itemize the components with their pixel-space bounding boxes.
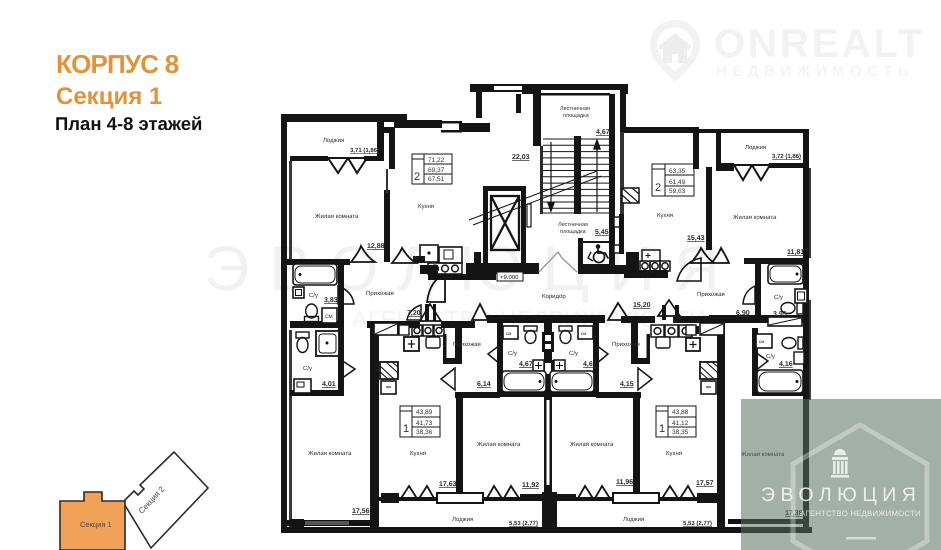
svg-text:Секция 1: Секция 1 [80,520,112,529]
svg-text:59,63: 59,63 [669,188,686,195]
svg-text:НЕДВИЖИМОСТЬ: НЕДВИЖИМОСТЬ [716,63,914,80]
svg-text:2: 2 [655,182,661,194]
svg-text:Кухня: Кухня [418,203,434,210]
svg-text:СМ: СМ [325,314,333,320]
svg-text:площадка: площадка [563,113,590,119]
svg-text:11,92: 11,92 [522,482,539,489]
svg-text:План 4-8 этажей: План 4-8 этажей [55,113,202,134]
svg-text:С/у: С/у [303,365,312,372]
svg-text:площадка: площадка [560,229,587,235]
svg-text:Кухня: Кухня [666,450,682,457]
svg-text:Лестничная: Лестничная [558,222,588,228]
svg-text:Лоджия: Лоджия [323,137,344,144]
svg-text:Кухня: Кухня [657,212,673,219]
svg-text:ONREALT: ONREALT [714,22,925,66]
svg-text:4,01: 4,01 [322,381,336,388]
svg-text:Жилая комната: Жилая комната [733,214,777,221]
svg-text:38,35: 38,35 [672,429,689,436]
svg-text:Жилая комната: Жилая комната [570,441,614,448]
svg-text:Секция 1: Секция 1 [56,83,162,110]
svg-text:Коридор: Коридор [542,293,566,300]
svg-text:3,95: 3,95 [773,311,787,318]
svg-text:67,51: 67,51 [428,176,445,183]
svg-text:3,83: 3,83 [324,297,338,304]
svg-text:С/у: С/у [766,353,775,360]
svg-text:41,12: 41,12 [672,420,689,427]
svg-text:С/у: С/у [569,350,578,357]
svg-text:17,57: 17,57 [696,480,714,487]
svg-text:41,73: 41,73 [416,420,433,427]
svg-text:С/у: С/у [774,294,783,301]
svg-text:12,88: 12,88 [367,243,385,250]
svg-text:17,56: 17,56 [352,508,370,515]
svg-text:Жилая комната: Жилая комната [315,213,359,220]
svg-text:Прихожая: Прихожая [366,290,394,297]
svg-text:15,20: 15,20 [633,302,651,309]
svg-text:4,15: 4,15 [620,381,634,388]
svg-text:11,81: 11,81 [787,249,804,256]
svg-text:15,43: 15,43 [687,235,705,242]
svg-text:43,88: 43,88 [672,409,689,416]
svg-text:69,37: 69,37 [428,167,445,174]
svg-text:6,14: 6,14 [477,381,491,388]
svg-text:Жилая комната: Жилая комната [477,441,521,448]
svg-text:4,67: 4,67 [519,361,533,368]
svg-text:+9.000: +9.000 [500,274,519,281]
svg-text:3,72 (1,86): 3,72 (1,86) [772,153,801,160]
svg-text:см: см [759,339,764,344]
svg-text:6,90: 6,90 [736,310,750,317]
svg-text:5,53 (2,77): 5,53 (2,77) [683,520,712,527]
svg-text:22,03: 22,03 [512,154,530,161]
svg-text:5,53 (2,77): 5,53 (2,77) [509,520,538,527]
svg-text:43,89: 43,89 [416,409,433,416]
svg-text:1: 1 [403,423,409,435]
svg-text:АГЕНТСТВО НЕДВИЖИМОСТИ: АГЕНТСТВО НЕДВИЖИМОСТИ [800,509,921,518]
svg-text:Лоджия: Лоджия [452,516,473,523]
svg-text:см: см [581,331,586,336]
svg-text:С/у: С/у [508,350,517,357]
svg-text:ЭВОЛЮЦИЯ: ЭВОЛЮЦИЯ [761,484,921,506]
svg-text:63,35: 63,35 [669,168,686,175]
svg-text:Кухня: Кухня [410,450,426,457]
svg-text:38,36: 38,36 [416,429,433,436]
svg-text:Лестничная: Лестничная [560,106,590,112]
svg-text:5,45: 5,45 [595,229,609,236]
svg-text:Прихожая: Прихожая [612,341,640,348]
svg-text:61,49: 61,49 [669,179,686,186]
svg-text:Лоджия: Лоджия [623,516,644,523]
svg-text:КОРПУС 8: КОРПУС 8 [56,49,179,79]
svg-text:71,22: 71,22 [428,157,445,164]
svg-text:17,63: 17,63 [439,481,457,488]
svg-text:11,96: 11,96 [616,479,633,486]
svg-text:1: 1 [659,423,665,435]
svg-text:см: см [506,331,511,336]
svg-text:4,67: 4,67 [596,129,610,136]
svg-text:Прихожая: Прихожая [453,341,481,348]
svg-text:Жилая комната: Жилая комната [308,450,352,457]
svg-text:7,20: 7,20 [407,310,421,317]
svg-text:4,67: 4,67 [583,361,597,368]
svg-text:Лоджия: Лоджия [745,144,766,151]
svg-text:3,71 (1,86): 3,71 (1,86) [350,147,379,154]
svg-text:Прихожая: Прихожая [697,291,725,298]
svg-text:2: 2 [414,171,420,183]
svg-text:4,16: 4,16 [779,361,793,368]
svg-text:С/у: С/у [309,292,318,299]
